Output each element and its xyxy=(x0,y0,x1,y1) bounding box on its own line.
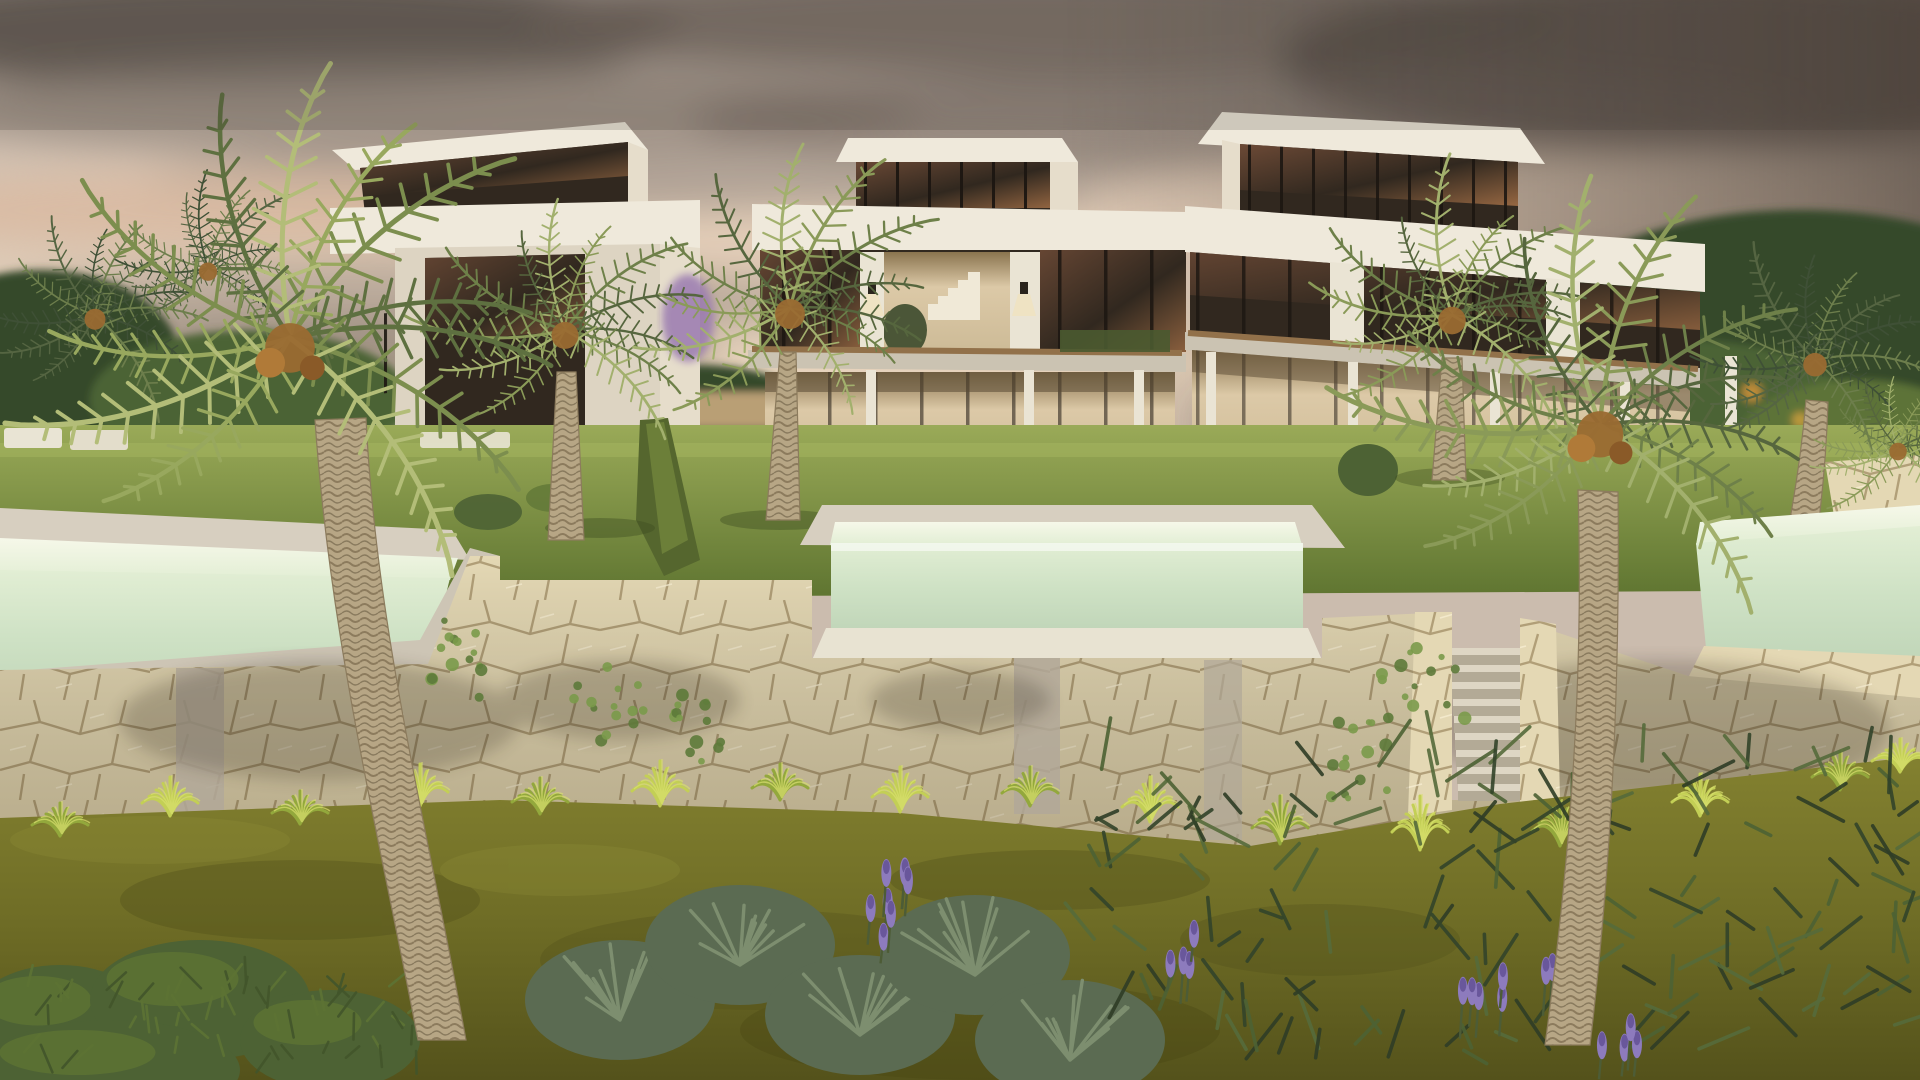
ivy-leaf xyxy=(475,693,484,702)
ivy-leaf xyxy=(690,735,704,749)
stairs xyxy=(1450,648,1528,801)
lavender-spike-tip xyxy=(880,924,887,938)
stair-tread xyxy=(1450,648,1520,655)
ivy-leaf xyxy=(698,758,705,765)
lavender-spike-tip xyxy=(905,867,912,881)
date-cluster xyxy=(1609,441,1632,464)
hedge-leaf xyxy=(353,1013,354,1039)
ivy-leaf xyxy=(445,632,454,641)
ivy-leaf xyxy=(569,694,579,704)
lavender-spike-tip xyxy=(1627,1014,1634,1028)
ivy-leaf xyxy=(1342,755,1349,762)
ivy-leaf xyxy=(1376,668,1388,680)
ivy-leaf xyxy=(1394,659,1407,672)
lavender-spike-tip xyxy=(1621,1035,1628,1049)
lavender-spike-tip xyxy=(1167,951,1174,965)
palm-crown xyxy=(85,309,106,330)
center-villa-fascia xyxy=(752,204,1186,258)
date-cluster xyxy=(255,348,285,378)
palm-crown xyxy=(1803,353,1827,377)
center-pool-coping-near xyxy=(812,628,1322,660)
date-cluster xyxy=(1568,434,1596,462)
ivy-leaf xyxy=(716,738,725,747)
ivy-leaf xyxy=(676,714,683,721)
ivy-leaf xyxy=(471,649,478,656)
ivy-leaf xyxy=(1333,717,1345,729)
stair-wall-right xyxy=(1520,618,1560,804)
ivy-leaf xyxy=(634,681,642,689)
ivy-leaf xyxy=(427,673,438,684)
stair-riser xyxy=(1450,655,1520,665)
ivy-leaf xyxy=(602,730,612,740)
ivy-leaf xyxy=(1443,701,1451,709)
ivy-leaf xyxy=(699,699,710,710)
center-pool-glow-wall xyxy=(830,522,1302,545)
shrub-leaf xyxy=(1642,725,1644,761)
hedge-leaf xyxy=(245,957,246,984)
date-cluster xyxy=(300,355,325,380)
ivy-leaf xyxy=(475,664,487,676)
lavender-spike-tip xyxy=(1500,963,1507,977)
ivy-leaf xyxy=(676,689,689,702)
ivy-leaf xyxy=(441,617,447,623)
ivy-leaf xyxy=(602,662,612,672)
stair-tread xyxy=(1453,699,1523,706)
ivy-leaf xyxy=(674,701,681,708)
ivy-leaf xyxy=(615,686,622,693)
center-pool xyxy=(800,505,1345,660)
top-vignette xyxy=(0,0,1920,130)
ivy-leaf xyxy=(628,718,638,728)
ivy-leaf xyxy=(1383,786,1391,794)
ivy-leaf xyxy=(703,717,711,725)
palm-crown xyxy=(1889,443,1907,461)
hedge-leaf xyxy=(48,1005,49,1024)
ivy-leaf xyxy=(573,681,582,690)
center-villa-penthouse-roof xyxy=(836,138,1078,162)
ivy-leaf xyxy=(1426,666,1436,676)
ivy-leaf xyxy=(1339,760,1350,771)
ivy-leaf xyxy=(1348,723,1358,733)
ivy-leaf xyxy=(1411,683,1417,689)
lavender-spike-tip xyxy=(867,895,874,909)
lower-floor-shadow xyxy=(765,372,1175,392)
hedge-leaf xyxy=(411,1026,412,1045)
ivy-leaf xyxy=(466,655,474,663)
stair-tread xyxy=(1452,682,1522,689)
palm-crown xyxy=(1438,307,1466,335)
scene-canvas xyxy=(0,0,1920,1080)
palm-crown xyxy=(199,262,217,280)
ivy-leaf xyxy=(586,697,597,708)
ivy-leaf xyxy=(1368,719,1375,726)
ivy-leaf xyxy=(1383,713,1394,724)
lavender-spike-tip xyxy=(1543,958,1550,972)
lavender-spike-tip xyxy=(883,860,890,874)
wall-sconce xyxy=(1020,282,1028,294)
ivy-leaf xyxy=(1458,712,1471,725)
shrub-ball xyxy=(454,494,522,530)
architectural-render xyxy=(0,0,1920,1080)
palm-crown xyxy=(552,322,579,349)
ivy-leaf xyxy=(1327,759,1339,771)
lavender-spike-tip xyxy=(1599,1032,1606,1046)
hedge-leaf xyxy=(416,1051,417,1074)
lavender-spike-tip xyxy=(1460,978,1467,992)
lavender-spike-tip xyxy=(888,901,895,915)
ivy-leaf xyxy=(627,706,637,716)
ivy-leaf xyxy=(611,703,618,710)
ivy-leaf xyxy=(1438,654,1444,660)
shrub-leaf xyxy=(1484,934,1485,963)
ivy-leaf xyxy=(471,629,480,638)
water-light-line xyxy=(831,543,1303,551)
ivy-leaf xyxy=(1402,693,1409,700)
ivy-leaf xyxy=(1345,795,1351,801)
stair-tread xyxy=(1451,665,1521,672)
shrub-ball xyxy=(1338,444,1398,496)
right-pool-water xyxy=(1696,526,1920,658)
lavender-spike-tip xyxy=(1191,921,1198,935)
ivy-leaf xyxy=(685,747,695,757)
balcony-planter xyxy=(1060,330,1170,352)
ivy-leaf xyxy=(1407,700,1419,712)
palm-crown xyxy=(775,299,805,329)
ivy-leaf xyxy=(1451,664,1460,673)
stair-riser xyxy=(1451,672,1521,682)
ivy-leaf xyxy=(437,643,446,652)
ivy-leaf xyxy=(1407,649,1413,655)
ivy-leaf xyxy=(611,710,621,720)
ivy-leaf xyxy=(446,658,459,671)
ivy-leaf xyxy=(639,706,648,715)
lavender-spike-tip xyxy=(1469,978,1476,992)
center-pool-water xyxy=(831,543,1303,629)
ivy-leaf xyxy=(453,637,462,646)
stair-riser xyxy=(1452,689,1522,699)
ivy-leaf xyxy=(1361,746,1374,759)
